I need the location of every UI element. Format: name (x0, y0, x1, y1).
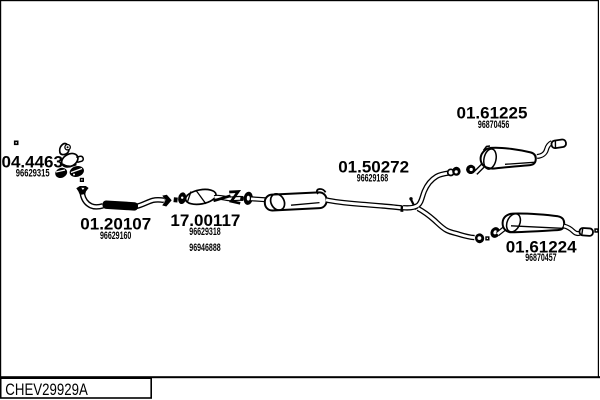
svg-text:96870456: 96870456 (478, 118, 509, 130)
svg-text:96946888: 96946888 (189, 242, 220, 254)
svg-text:96870457: 96870457 (525, 252, 556, 264)
svg-text:CHEV29929A: CHEV29929A (5, 380, 88, 399)
svg-text:96629168: 96629168 (357, 172, 388, 184)
svg-text:96629160: 96629160 (100, 229, 131, 241)
svg-text:96629315: 96629315 (16, 167, 50, 179)
svg-text:96629318: 96629318 (189, 226, 220, 238)
